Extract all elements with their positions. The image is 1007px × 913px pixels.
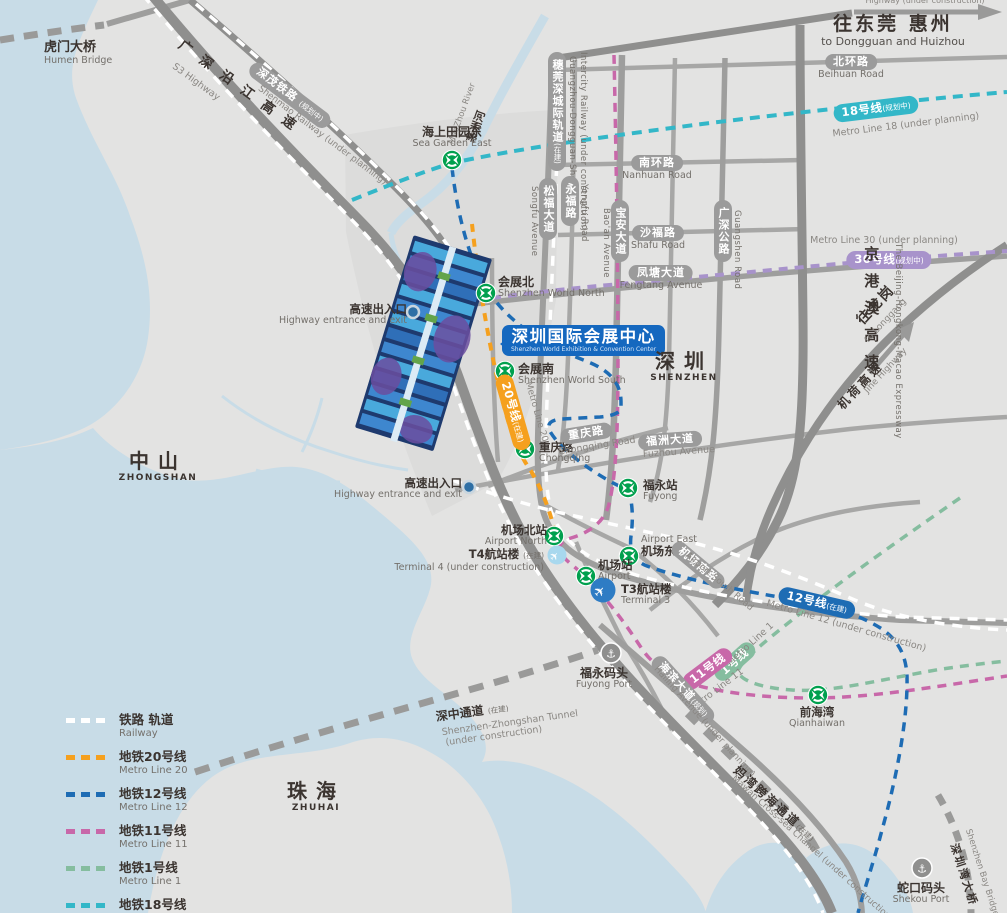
- label-nanhuan-road: 南环路 Nanhuan Road: [622, 152, 692, 182]
- label-guangshen-pill: 广深公路: [714, 200, 732, 266]
- label-shekou-port: 蛇口码头 Shekou Port: [893, 882, 950, 905]
- label-beihuan-road: 北环路 Beihuan Road: [818, 51, 884, 81]
- line18-dash-swatch: [66, 903, 108, 908]
- label-line30-en: Metro Line 30 (under planning): [810, 236, 958, 247]
- label-fuyong-port: 福永码头 Fuyong Port: [576, 667, 632, 690]
- label-terminal4: T4航站楼 (在建) Terminal 4 (under constructio…: [394, 548, 544, 573]
- port-icon-fuyong: ⚓: [601, 643, 621, 663]
- label-fuyong-station: 福永站 Fuyong: [643, 479, 678, 502]
- line20-dash-swatch: [66, 755, 108, 760]
- line11-dash-swatch: [66, 829, 108, 834]
- label-qianhaiwan: 前海湾 Qianhaiwan: [789, 706, 845, 729]
- label-top-note: Highway (under construction): [865, 0, 984, 5]
- map-stage: ⚓ ⚓ ✈ ✈ 虎门大桥 Humen Bridge 广深沿江高速 S3 High…: [0, 0, 1007, 913]
- port-icon-shekou: ⚓: [912, 858, 932, 878]
- label-world-north: 会展北 Shenzhen World North: [498, 276, 605, 299]
- label-fengtang-avenue: 凤塘大道 Fengtang Avenue: [620, 262, 703, 292]
- station-icon-qianhaiwan: [808, 685, 829, 706]
- line12-dash-swatch: [66, 792, 108, 797]
- railway-dash-swatch: [66, 718, 108, 723]
- label-to-dongguan: 往东莞 惠州 to Dongguan and Huizhou: [821, 14, 965, 48]
- label-shalu-road: 沙福路 Shafu Road: [631, 222, 685, 252]
- legend-item-line1: 地铁1号线Metro Line 1: [66, 860, 188, 888]
- legend-item-railway: 铁路 轨道Railway: [66, 712, 188, 740]
- svg-text:⚓: ⚓: [917, 863, 927, 876]
- label-sea-garden-east: 海上田园东 Sea Garden East: [412, 126, 491, 149]
- label-airport-north: 机场北站 Airport North: [485, 524, 547, 547]
- legend-item-line18: 地铁18号线Metro Line 18: [66, 897, 188, 913]
- svg-text:⚓: ⚓: [606, 648, 616, 661]
- station-icon-world-north: [476, 283, 497, 304]
- title-pill: 深圳国际会展中心 Shenzhen World Exhibition & Con…: [502, 325, 665, 356]
- label-baoan-en: Bao'an Avenue: [600, 208, 610, 278]
- legend-item-line11: 地铁11号线Metro Line 11: [66, 823, 188, 851]
- highway-entrance-dot-south: [463, 481, 475, 493]
- legend-item-line20: 地铁20号线Metro Line 20: [66, 749, 188, 777]
- label-entrance-north: 高速出入口 Highway entrance and exit: [279, 303, 407, 326]
- label-region-zhongshan: 中山 ZHONGSHAN: [119, 450, 198, 483]
- label-world-south: 会展南 Shenzhen World South: [518, 363, 626, 386]
- station-icon-sea-garden-east: [442, 150, 463, 171]
- label-songfu-en: Songfu Avenue: [528, 186, 538, 257]
- label-line30-pill: 30号线(规划中): [846, 249, 931, 269]
- page-title: 深圳国际会展中心: [511, 327, 656, 346]
- label-region-shenzhen: 深圳 SHENZHEN: [650, 350, 717, 383]
- legend-item-line12: 地铁12号线Metro Line 12: [66, 786, 188, 814]
- label-entrance-south: 高速出入口 Highway entrance and exit: [334, 477, 462, 500]
- highway-entrance-dot-north: [407, 306, 419, 318]
- label-jinggangao-en: The Beijing-Hongkong-Macao Expressway: [892, 243, 902, 439]
- label-yongfu-pill: 永福路: [561, 176, 579, 230]
- station-icon-fuyong: [618, 478, 639, 499]
- legend: 铁路 轨道Railway 地铁20号线Metro Line 20 地铁12号线M…: [66, 712, 188, 913]
- label-suiwanshen-pill: 穗莞深城际轨道(在建): [548, 52, 566, 175]
- line1-dash-swatch: [66, 866, 108, 871]
- label-baoan-pill: 宝安大道: [611, 200, 629, 266]
- label-yongfu-en: Yongfu Road: [578, 184, 588, 242]
- label-terminal3: T3航站楼 Terminal 3: [621, 583, 671, 606]
- label-airport-station: 机场站 Airport: [598, 559, 633, 582]
- label-songfu-pill: 松福大道: [539, 178, 557, 244]
- label-guangshen-en: Guangshen Road: [731, 210, 741, 289]
- label-region-zhuhai: 珠海 ZHUHAI: [287, 780, 345, 813]
- label-humen-bridge: 虎门大桥 Humen Bridge: [44, 41, 112, 67]
